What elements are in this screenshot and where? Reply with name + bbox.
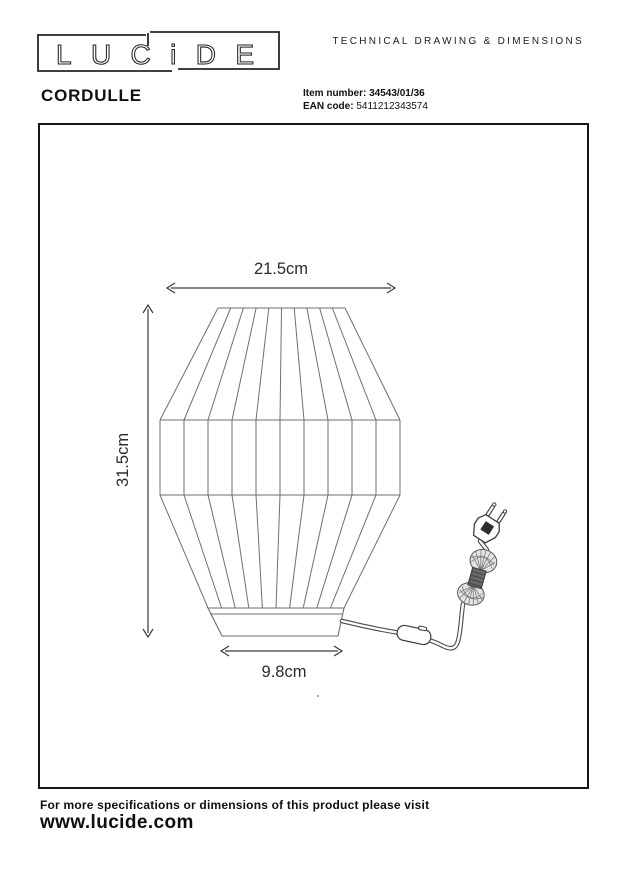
drawing-frame [38, 123, 589, 789]
ean-code-label: EAN code: [303, 101, 354, 112]
item-number-label: Item number: [303, 88, 366, 99]
item-number-value: 34543/01/36 [369, 88, 425, 99]
document-type-title: TECHNICAL DRAWING & DIMENSIONS [332, 36, 584, 47]
footer-note: For more specifications or dimensions of… [40, 798, 429, 812]
logo-wordmark: LUCiDE [56, 39, 256, 70]
product-name: CORDULLE [41, 86, 142, 106]
website-link[interactable]: www.lucide.com [40, 812, 194, 834]
ean-code-value: 5411212343574 [356, 101, 428, 112]
spec-sheet-page: LUCiDE TECHNICAL DRAWING & DIMENSIONS CO… [0, 0, 620, 877]
product-codes: Item number: 34543/01/36 EAN code: 54112… [303, 87, 428, 113]
item-number-row: Item number: 34543/01/36 [303, 87, 428, 100]
ean-code-row: EAN code: 5411212343574 [303, 100, 428, 113]
